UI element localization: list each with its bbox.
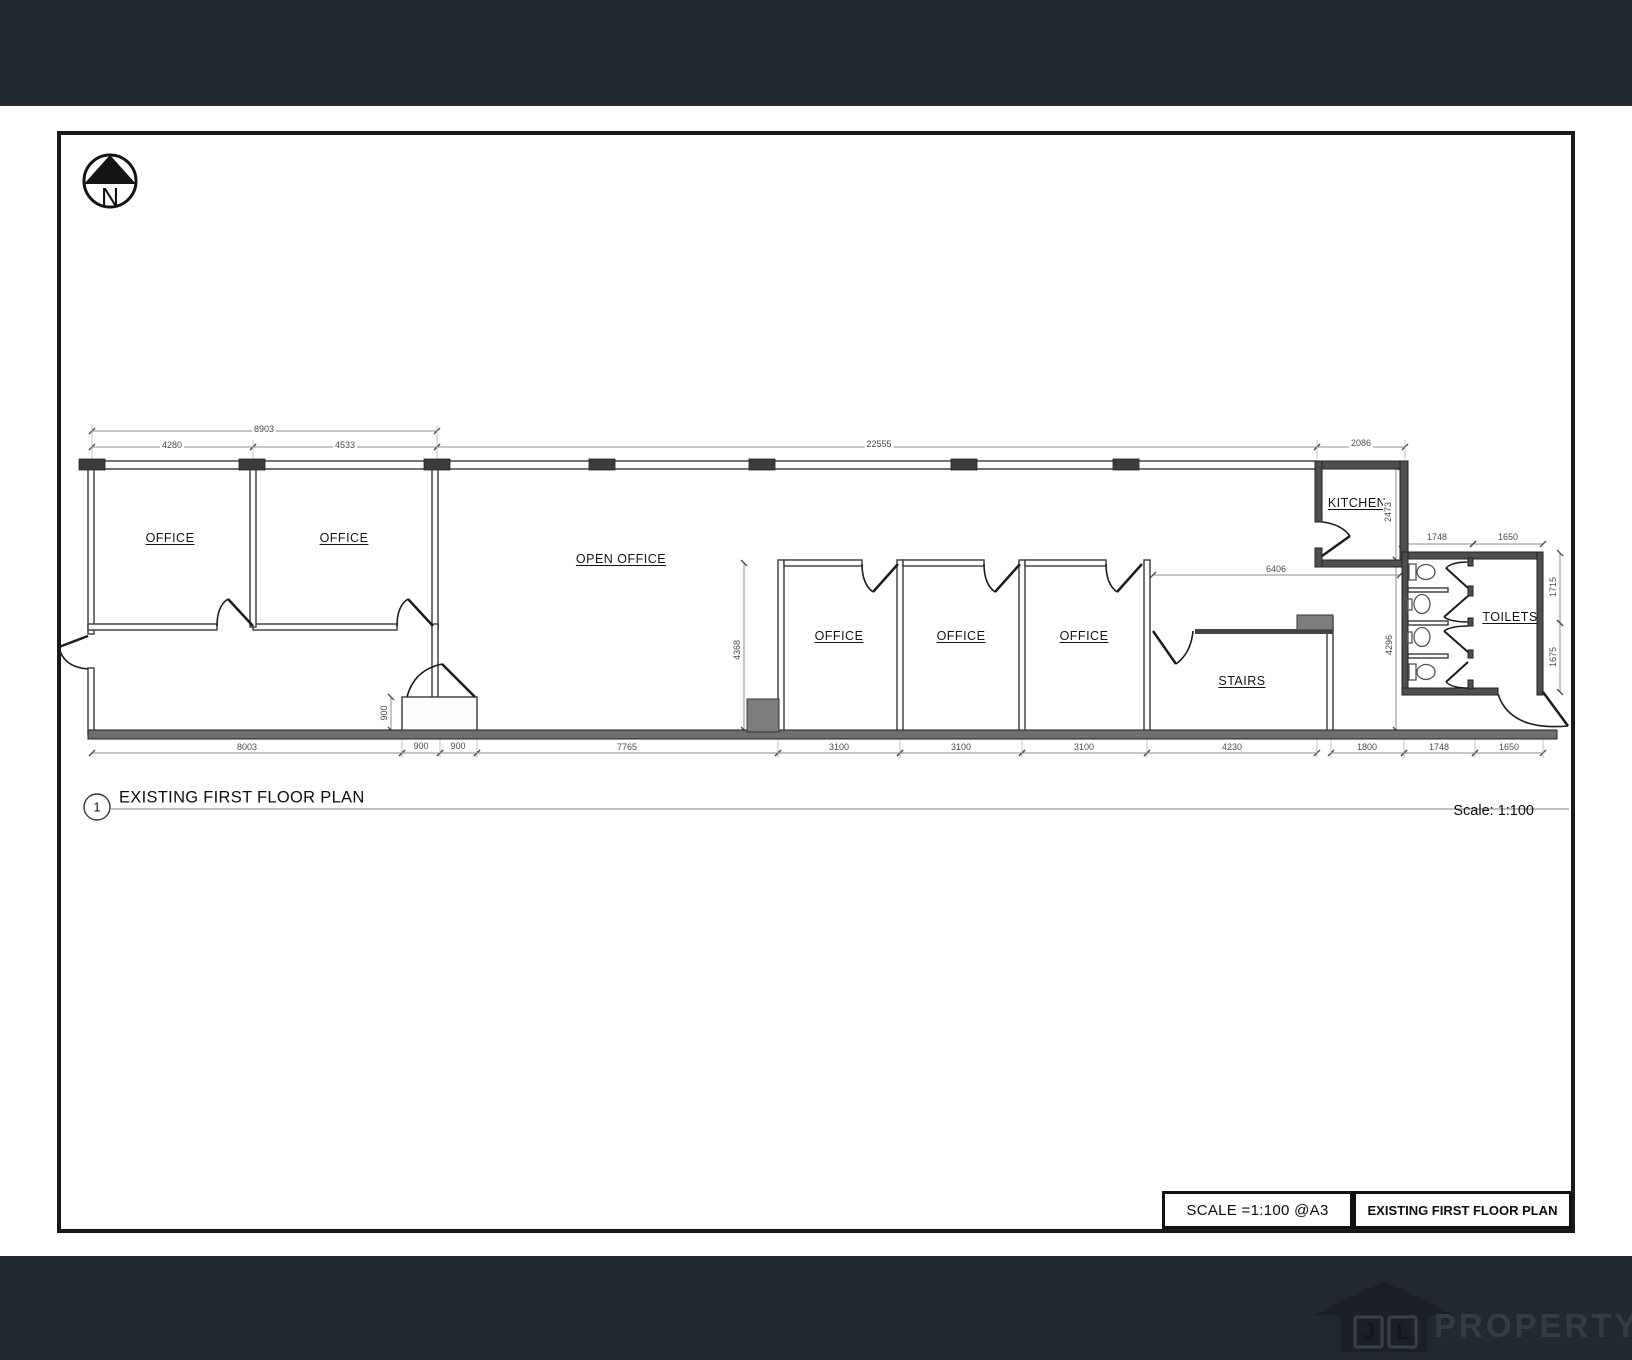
dim-label: 1675 (1548, 645, 1558, 669)
room-label-office-5: OFFICE (1060, 629, 1109, 643)
plan-number-badge: 1 (93, 800, 100, 815)
dim-label: 4230 (1220, 742, 1244, 752)
dim-label: 22555 (864, 439, 893, 449)
title-block-scale: SCALE =1:100 @A3 (1162, 1191, 1353, 1229)
dim-label: 6406 (1264, 564, 1288, 574)
dim-label: 1748 (1425, 532, 1449, 542)
room-label-open-office: OPEN OFFICE (576, 552, 666, 566)
dim-label: 1748 (1427, 742, 1451, 752)
dim-label: 3100 (949, 742, 973, 752)
title-block-scale-text: SCALE =1:100 @A3 (1186, 1202, 1328, 1219)
dim-label: 1800 (1355, 742, 1379, 752)
room-label-office-3: OFFICE (815, 629, 864, 643)
title-block-name-text: EXISTING FIRST FLOOR PLAN (1368, 1203, 1558, 1218)
room-label-office-1: OFFICE (146, 531, 195, 545)
north-letter: N (101, 184, 119, 213)
room-label-kitchen: KITCHEN (1328, 496, 1386, 510)
dim-label: 8003 (235, 742, 259, 752)
room-label-stairs: STAIRS (1218, 674, 1265, 688)
dim-label: 4296 (1384, 633, 1394, 657)
dim-label: 4533 (333, 440, 357, 450)
room-label-office-2: OFFICE (320, 531, 369, 545)
dim-label: 4280 (160, 440, 184, 450)
room-label-toilets: TOILETS (1482, 610, 1537, 624)
dim-label: 900 (448, 741, 467, 751)
plan-title: EXISTING FIRST FLOOR PLAN (119, 789, 365, 808)
dim-label: 1650 (1497, 742, 1521, 752)
logo-initial-j: J (1363, 1319, 1376, 1346)
dim-label: 1715 (1548, 575, 1558, 599)
dim-label: 1650 (1496, 532, 1520, 542)
dim-label: 2473 (1383, 500, 1393, 524)
dim-label: 3100 (827, 742, 851, 752)
dim-label: 900 (379, 703, 389, 722)
floor-plan-drawing (0, 0, 1632, 1360)
logo-wordmark: PROPERTY (1434, 1307, 1632, 1345)
dim-label: 900 (411, 741, 430, 751)
dim-label: 3100 (1072, 742, 1096, 752)
room-label-office-4: OFFICE (937, 629, 986, 643)
title-block-name: EXISTING FIRST FLOOR PLAN (1353, 1191, 1572, 1229)
logo-initial-l: L (1396, 1319, 1410, 1346)
dim-label: 7765 (615, 742, 639, 752)
dim-label: 4368 (732, 638, 742, 662)
scale-note: Scale: 1:100 (1453, 803, 1534, 819)
dim-label: 8903 (252, 424, 276, 434)
dim-label: 2086 (1349, 438, 1373, 448)
